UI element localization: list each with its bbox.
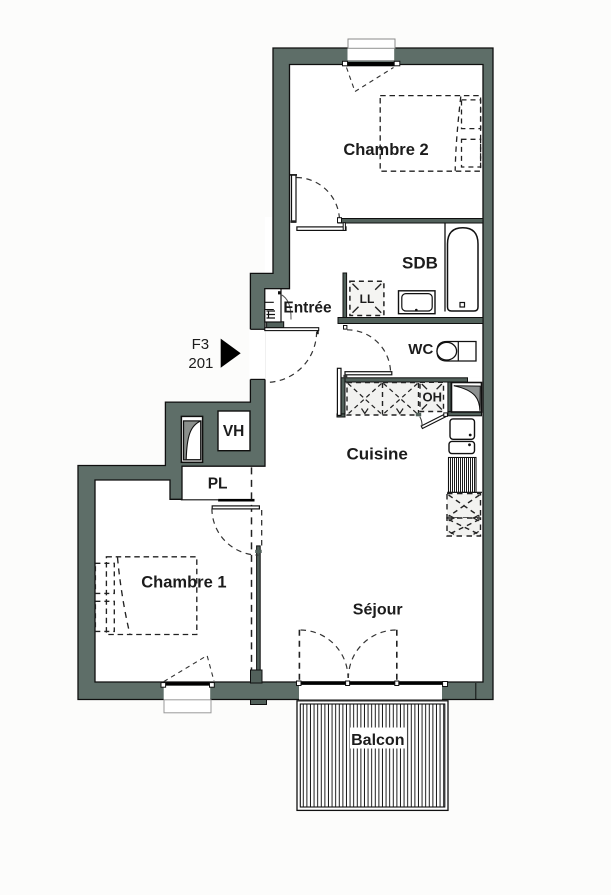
svg-text:SDB: SDB [402, 254, 438, 273]
svg-text:Cuisine: Cuisine [346, 445, 407, 464]
svg-text:LL: LL [360, 292, 375, 306]
svg-text:WC: WC [408, 341, 433, 358]
svg-text:Balcon: Balcon [351, 732, 404, 749]
svg-text:PL: PL [208, 476, 228, 493]
svg-text:Entrée: Entrée [283, 299, 332, 316]
svg-text:Séjour: Séjour [353, 602, 403, 619]
svg-text:VH: VH [223, 423, 245, 440]
svg-text:201: 201 [188, 355, 213, 372]
svg-text:Chambre 1: Chambre 1 [141, 574, 226, 592]
svg-text:OH: OH [423, 389, 443, 404]
svg-text:Chambre 2: Chambre 2 [343, 141, 428, 159]
svg-text:F3: F3 [192, 336, 210, 353]
